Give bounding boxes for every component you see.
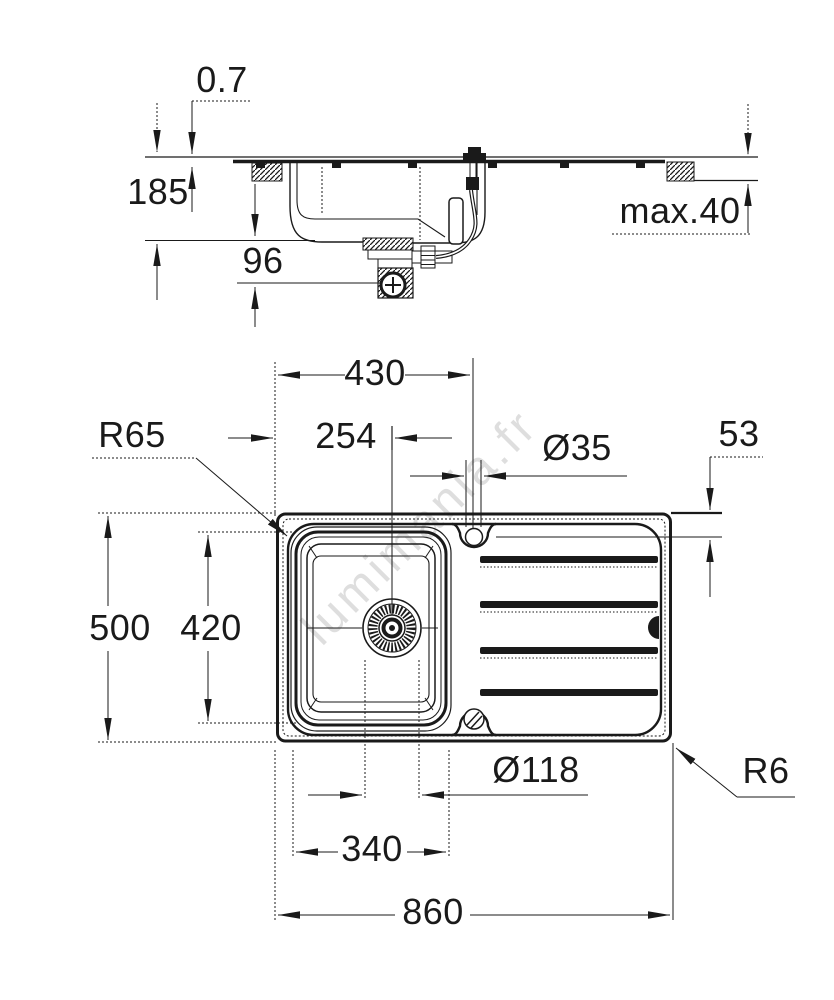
dimension-label-trap-clearance: 96 [242,243,283,279]
rim-clips [256,163,645,168]
sink-technical-drawing: lumimania.fr [0,0,834,1000]
overflow-standpipe [449,198,463,244]
dimension-label-outer-corner-radius: R6 [742,753,789,789]
dimension-label-overall-width: 860 [402,894,464,930]
overflow-hole [464,709,484,729]
drainboard-notch [648,616,659,639]
dimension-label-worktop-thickness: max.40 [619,193,740,229]
dimension-label-sheet-thickness: 0.7 [196,62,248,98]
dimension-label-tap-offset: 430 [344,355,406,391]
left-clamp-hatch [252,163,282,181]
dimension-label-drain-offset: 254 [315,418,377,454]
dimension-label-drainboard-edge-offset: 53 [718,416,759,452]
dimension-label-overall-depth: 500 [89,610,151,646]
dimension-label-bowl-inner-length: 420 [180,610,242,646]
tap-hole [466,529,483,546]
dimension-label-tap-hole-diameter: Ø35 [542,430,612,466]
drain-flange-hatch [363,238,413,250]
tap-stub [463,147,486,190]
right-clamp-hatch [667,162,694,181]
dimension-label-drain-diameter: Ø118 [492,752,579,788]
dimension-label-bowl-inner-width: 340 [341,831,403,867]
dimension-label-bowl-corner-radius: R65 [98,417,166,453]
dimension-label-bowl-depth: 185 [127,174,189,210]
technical-drawing-svg [0,0,834,1000]
drainboard-ribs [480,556,658,696]
